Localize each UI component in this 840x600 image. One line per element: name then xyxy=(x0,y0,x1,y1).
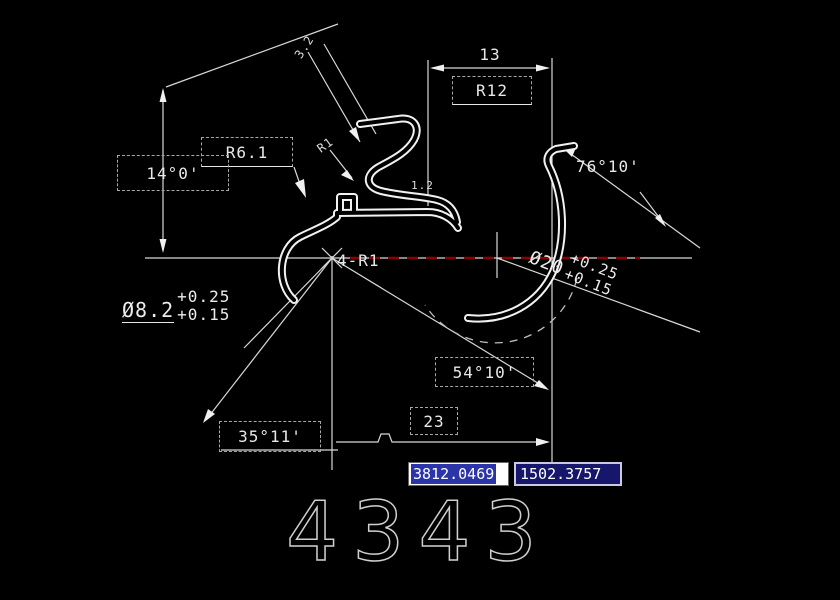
dia-82-tol-lower: +0.15 xyxy=(177,306,230,324)
top-left-slant-line xyxy=(166,24,338,87)
coord-y-input[interactable]: 1502.3757 xyxy=(514,462,622,486)
angle-14-label: 14°0' xyxy=(117,155,229,191)
coord-x-value[interactable]: 3812.0469 xyxy=(411,464,496,484)
dim-23-label: 23 xyxy=(410,407,458,435)
drawing-number-text: 4343 xyxy=(286,485,551,580)
dim23-line xyxy=(336,434,546,442)
dim32-ext-a xyxy=(308,52,360,142)
dimension-lines xyxy=(145,24,700,470)
dia-82-tol-upper: +0.25 xyxy=(177,288,230,306)
coord-x-input[interactable]: 3812.0469 xyxy=(408,462,509,486)
dia-82-label: Ø8.2 +0.25 +0.15 xyxy=(122,288,230,323)
angle-76-label: 76°10' xyxy=(576,157,640,176)
coord-y-value[interactable]: 1502.3757 xyxy=(520,465,601,483)
hidden-circle-arc xyxy=(425,278,577,343)
fillet-4r1-label: 4-R1 xyxy=(337,251,380,270)
cad-viewport[interactable]: 4343 13 R12 R6.1 14°0' 76°10' 54°10' 35°… xyxy=(0,0,840,600)
angle35-leader xyxy=(206,258,332,420)
dia82-leader xyxy=(244,258,332,348)
angle-54-label: 54°10' xyxy=(435,357,534,387)
angle-35-label: 35°11' xyxy=(219,421,321,452)
dia-82-tolerances: +0.25 +0.15 xyxy=(177,288,230,323)
dim-13-label: 13 xyxy=(468,45,512,64)
dia-82-value: Ø8.2 xyxy=(122,298,174,323)
dim-12-label: 1.2 xyxy=(411,179,434,192)
r12-label: R12 xyxy=(452,76,532,105)
